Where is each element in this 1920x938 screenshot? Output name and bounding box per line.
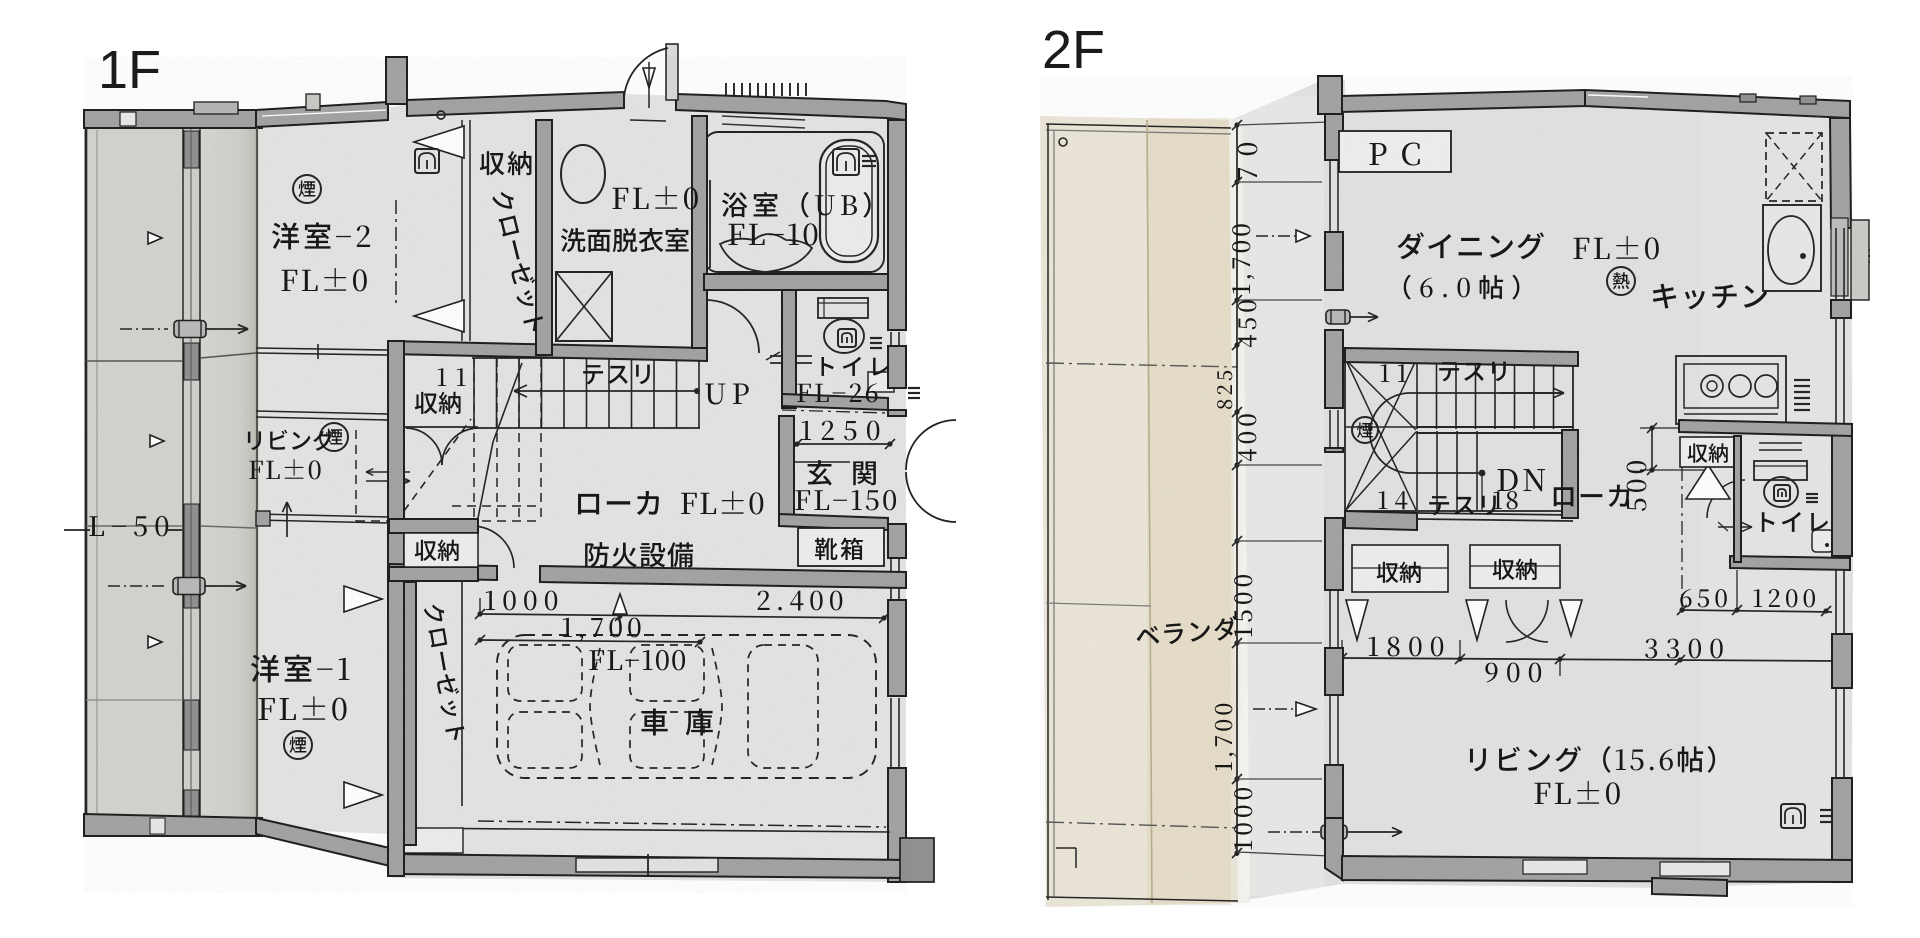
- svg-text:2F: 2F: [1042, 20, 1105, 80]
- svg-text:1F: 1F: [98, 40, 161, 100]
